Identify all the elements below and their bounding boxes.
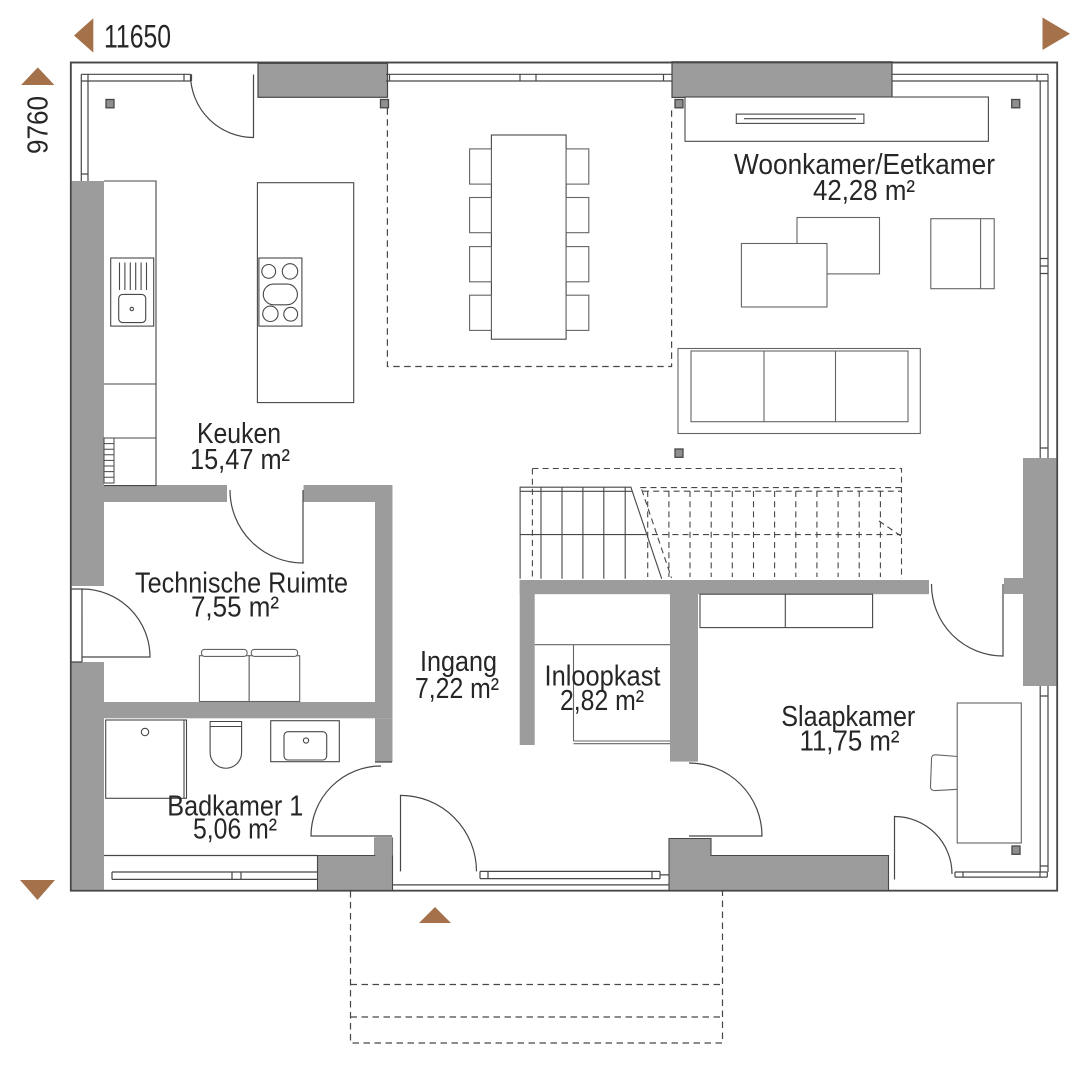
svg-text:11650: 11650 — [104, 19, 171, 55]
svg-text:7,55 m²: 7,55 m² — [191, 592, 279, 624]
svg-text:5,06 m²: 5,06 m² — [193, 814, 277, 846]
svg-text:15,47 m²: 15,47 m² — [190, 444, 290, 476]
svg-text:42,28 m²: 42,28 m² — [813, 175, 915, 207]
svg-text:9760: 9760 — [23, 96, 55, 154]
svg-text:7,22 m²: 7,22 m² — [415, 673, 499, 705]
svg-text:11,75 m²: 11,75 m² — [800, 726, 900, 758]
svg-text:2,82 m²: 2,82 m² — [560, 685, 644, 717]
